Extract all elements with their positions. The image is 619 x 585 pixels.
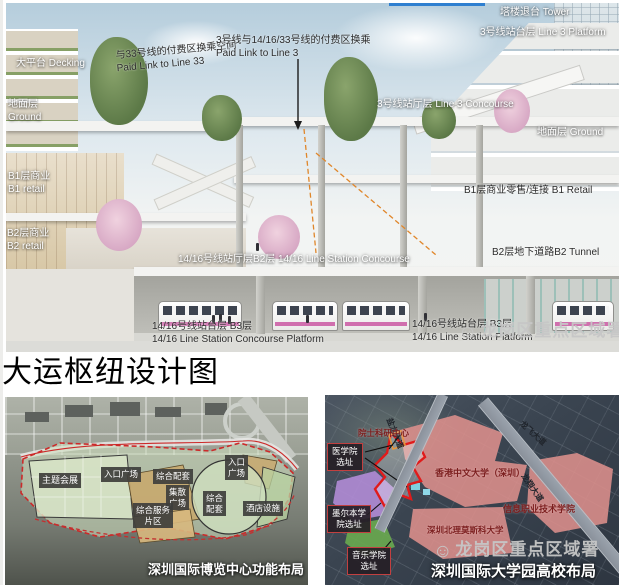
institution-academician-center: 院士科研中心 — [358, 427, 409, 439]
label-cn: 地面层 — [537, 127, 567, 138]
label-en: B2 retail — [7, 240, 49, 253]
label-en: Tower — [543, 7, 570, 18]
label-cn: 14/16号线站厅层B2层 — [178, 254, 275, 265]
zone-text: 配套 — [206, 504, 223, 515]
label-ground-left: 地面层 Ground — [8, 98, 41, 124]
watermark-text: 龙岗区重点区域署 — [480, 321, 619, 340]
label-1416-platform-left: 14/16号线站台层 B3层 14/16 Line Station Concou… — [152, 320, 324, 346]
page-edge-line — [0, 0, 3, 585]
smiley-face-icon: ☺ — [458, 322, 478, 343]
site-box-medical-school: 医学院 选址 — [327, 443, 363, 471]
expo-plan-overlay — [5, 397, 308, 585]
label-cn: B1层商业 — [8, 170, 50, 183]
label-en: Line 3 Concourse — [435, 99, 513, 110]
page-title: 大运枢纽设计图 — [2, 352, 219, 394]
label-cn: 地面层 — [8, 98, 41, 111]
zone-label-hotel-facilities: 酒店设施 — [243, 501, 283, 516]
zone-text: 片区 — [136, 516, 170, 527]
site-box-music-school: 音乐学院 选址 — [347, 547, 391, 575]
zone-label-main-exhibition: 主题会展 — [39, 473, 81, 488]
zone-text: 综合服务 — [136, 505, 170, 516]
zone-label-entry-plaza-east: 入口 广场 — [225, 455, 248, 480]
label-cn: 3号线与14/16/33号线的付费区换乘 — [216, 34, 371, 47]
article-page: 塔楼退台 Tower 3号线站台层 Line 3 Platform 与33号线的… — [0, 0, 619, 585]
label-en: B1 Retail — [552, 185, 593, 196]
label-cn: B1层商业零售/连接 — [464, 185, 549, 196]
zone-text: 广场 — [228, 468, 245, 479]
zone-text: 综合 — [206, 493, 223, 504]
zone-text: 集散 — [169, 487, 186, 498]
zone-text: 综合配套 — [156, 471, 190, 482]
label-en: Ground — [8, 111, 41, 124]
label-en: Line 3 Platform — [538, 27, 605, 38]
water-feature — [423, 489, 430, 495]
label-decking: 大平台 Decking — [16, 57, 85, 70]
label-b1-retail-right: B1层商业零售/连接 B1 Retail — [464, 184, 592, 197]
zone-label-service-area: 综合服务 片区 — [133, 503, 173, 528]
label-en: 14/16 Line Station Concourse Platform — [152, 333, 324, 346]
institution-info-institute: 信息职业技术学院 — [503, 502, 575, 515]
label-en: B1 retail — [8, 183, 50, 196]
zone-label-support-north: 综合配套 — [153, 469, 193, 484]
label-cn: 3号线站台层 — [480, 27, 536, 38]
label-cn: 大平台 — [16, 58, 46, 69]
site-box-melbourne: 墨尔本学 院选址 — [327, 505, 371, 533]
university-map-caption: 深圳国际大学园高校布局 — [431, 560, 596, 581]
watermark-text: 龙岗区重点区域署 — [455, 540, 599, 559]
site-text: 医学院 — [332, 446, 358, 457]
site-text: 选址 — [332, 457, 358, 468]
label-b2-tunnel: B2层地下道路B2 Tunnel — [492, 246, 599, 259]
label-cn: 塔楼退台 — [500, 7, 540, 18]
zone-text: 入口 — [228, 457, 245, 468]
label-paid-link-line3: 3号线与14/16/33号线的付费区换乘 Paid Link to Line 3 — [216, 34, 371, 60]
label-en: Paid Link to Line 3 — [216, 47, 371, 60]
zone-text: 入口广场 — [104, 469, 138, 480]
label-b2-retail-left: B2层商业 B2 retail — [7, 227, 49, 253]
pointer-arrowhead — [294, 121, 302, 130]
site-text: 音乐学院 — [352, 550, 386, 561]
label-cn: 14/16号线站台层 B3层 — [152, 320, 324, 333]
label-line3-platform: 3号线站台层 Line 3 Platform — [480, 26, 606, 39]
expo-center-functional-map: 主题会展 入口广场 综合配套 入口 广场 集散 广场 综合服务 片区 综合 配套… — [5, 397, 308, 585]
watermark: ☺龙岗区重点区域署 — [458, 316, 619, 344]
zone-text: 主题会展 — [42, 475, 78, 486]
label-en: Ground — [570, 127, 603, 138]
label-tower: 塔楼退台 Tower — [500, 6, 569, 19]
label-en: 14/16 Line Station Concourse — [278, 254, 410, 265]
route-dashed-line — [316, 153, 436, 255]
zone-text: 酒店设施 — [246, 503, 280, 514]
label-ground-right: 地面层 Ground — [537, 126, 603, 139]
smiley-face-icon: ☺ — [433, 541, 453, 562]
label-cn: B2层商业 — [7, 227, 49, 240]
label-en: Decking — [49, 58, 85, 69]
label-cn: B2层地下道路 — [492, 247, 554, 258]
zone-label-support-circle: 综合 配套 — [203, 491, 226, 516]
site-text: 选址 — [352, 561, 386, 572]
zone-label-entry-plaza-west: 入口广场 — [101, 467, 141, 482]
label-1416-concourse: 14/16号线站厅层B2层 14/16 Line Station Concour… — [178, 253, 410, 266]
institution-cuhk-shenzhen: 香港中文大学（深圳） — [435, 466, 525, 479]
site-text: 院选址 — [332, 519, 366, 530]
transit-hub-section-rendering: 塔楼退台 Tower 3号线站台层 Line 3 Platform 与33号线的… — [6, 3, 619, 352]
label-line3-concourse: 3号线站厅层 Line 3 Concourse — [377, 98, 514, 111]
route-dashed-line — [304, 129, 316, 253]
expo-map-caption: 深圳国际博览中心功能布局 — [148, 559, 304, 578]
university-park-map: 盐龙大道 龙飞大道 龙翔大道 院士科研中心 香港中文大学（深圳） 信息职业技术学… — [325, 395, 619, 585]
label-b1-retail-left: B1层商业 B1 retail — [8, 170, 50, 196]
label-en: B2 Tunnel — [554, 247, 599, 258]
site-text: 墨尔本学 — [332, 508, 366, 519]
label-cn: 3号线站厅层 — [377, 99, 433, 110]
watermark: ☺龙岗区重点区域署 — [433, 535, 599, 563]
